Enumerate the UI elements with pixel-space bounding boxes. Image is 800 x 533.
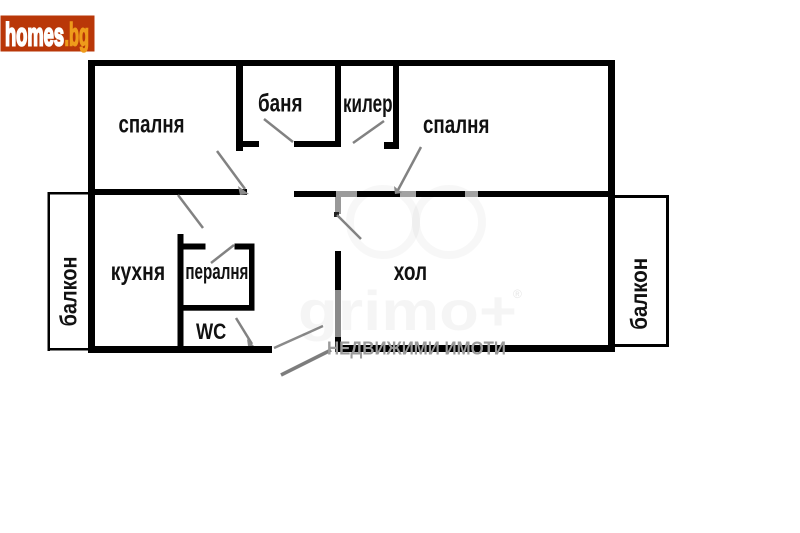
svg-text:хол: хол: [394, 258, 427, 286]
svg-text:спалня: спалня: [119, 111, 185, 139]
svg-text:спалня: спалня: [423, 111, 489, 139]
svg-text:.bg: .bg: [65, 16, 90, 52]
svg-text:баня: баня: [258, 90, 303, 118]
svg-text:НЕДВИЖИМИ ИМОТИ: НЕДВИЖИМИ ИМОТИ: [327, 339, 506, 359]
svg-text:®: ®: [513, 287, 522, 301]
svg-text:килер: килер: [343, 90, 393, 118]
svg-text:балкон: балкон: [56, 256, 82, 326]
svg-text:кухня: кухня: [111, 258, 165, 286]
svg-text:grimo+: grimo+: [298, 279, 517, 342]
svg-text:homes: homes: [5, 16, 64, 52]
svg-text:WC: WC: [196, 319, 226, 344]
svg-text:балкон: балкон: [626, 258, 652, 330]
svg-text:пералня: пералня: [185, 259, 248, 284]
